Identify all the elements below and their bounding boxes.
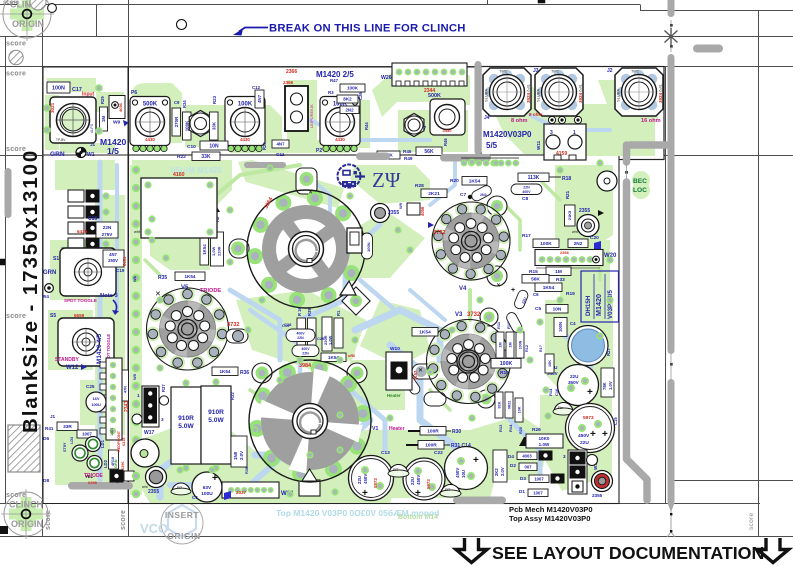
svg-text:1M: 1M (555, 269, 562, 275)
svg-text:100K: 100K (347, 86, 359, 91)
svg-text:C9: C9 (174, 100, 180, 105)
svg-text:C16: C16 (554, 388, 559, 396)
svg-text:D8: D8 (43, 478, 49, 484)
svg-text:+: + (590, 429, 596, 440)
svg-text:113K: 113K (528, 175, 540, 181)
svg-text:4430: 4430 (240, 137, 250, 142)
svg-text:REDFRONT: REDFRONT (117, 430, 121, 452)
svg-text:R 16: R 16 (297, 306, 302, 316)
svg-text:1.0V: 1.0V (608, 381, 613, 390)
svg-text:2355: 2355 (388, 210, 399, 216)
svg-text:R38: R38 (245, 467, 249, 474)
svg-text:W1: W1 (87, 152, 95, 158)
svg-text:10N: 10N (209, 143, 219, 149)
svg-text:J2: J2 (607, 68, 613, 74)
svg-text:wht: wht (134, 230, 141, 234)
svg-text:Pcb Mech M1420V03P0: Pcb Mech M1420V03P0 (509, 505, 593, 514)
svg-text:1K54: 1K54 (185, 274, 196, 279)
svg-text:W9: W9 (398, 202, 403, 209)
svg-text:2N2: 2N2 (574, 241, 583, 247)
svg-text:R17: R17 (522, 233, 531, 239)
svg-text:4N7: 4N7 (257, 94, 262, 103)
svg-text:1: 1 (137, 393, 140, 398)
svg-text:1,0W: 1,0W (328, 335, 333, 345)
svg-text:score: score (6, 71, 26, 78)
svg-text:100K: 100K (500, 361, 513, 367)
svg-text:R25: R25 (519, 427, 523, 434)
svg-text:Rv: Rv (558, 405, 563, 410)
svg-text:10K0: 10K0 (539, 436, 550, 441)
svg-text:+: + (511, 287, 515, 294)
svg-text:BREAK ON THIS LINE FOR CLINCH: BREAK ON THIS LINE FOR CLINCH (269, 23, 466, 35)
svg-text:22N: 22N (302, 351, 309, 355)
svg-text:2.0V: 2.0V (239, 451, 244, 460)
svg-text:400V: 400V (522, 190, 531, 194)
svg-text:100K: 100K (540, 241, 552, 247)
svg-text:220R: 220R (217, 246, 222, 256)
svg-text:VCO: VCO (140, 521, 168, 536)
svg-text:ORIGIN: ORIGIN (12, 19, 44, 29)
svg-text:RT: RT (445, 487, 451, 492)
svg-text:3: 3 (161, 417, 164, 422)
svg-text:TRIODE: TRIODE (200, 288, 221, 294)
svg-text:21K5: 21K5 (567, 210, 572, 220)
svg-text:500K: 500K (143, 102, 158, 108)
svg-text:Bottom M14: Bottom M14 (398, 514, 438, 521)
svg-text:V5: V5 (181, 285, 189, 291)
svg-text:D4: D4 (508, 454, 514, 459)
svg-text:P2: P2 (316, 148, 322, 154)
svg-text:C11: C11 (276, 152, 285, 158)
svg-text:R32: R32 (230, 392, 235, 400)
svg-text:1N8: 1N8 (233, 451, 238, 460)
svg-text:R41: R41 (45, 426, 54, 431)
svg-text:LD1: LD1 (100, 439, 105, 448)
svg-text:W11: W11 (536, 140, 541, 150)
svg-text:R49: R49 (404, 156, 413, 161)
svg-text:R22: R22 (177, 154, 186, 160)
svg-text:D3: D3 (520, 476, 526, 481)
svg-text:100K: 100K (238, 102, 253, 108)
svg-text:4430: 4430 (145, 137, 155, 142)
svg-text:score: score (6, 41, 26, 48)
svg-text:C26: C26 (358, 92, 363, 100)
svg-text:6559: 6559 (74, 313, 85, 318)
svg-text:3732: 3732 (227, 322, 239, 328)
svg-text:J1: J1 (90, 142, 96, 147)
svg-text:+: + (362, 488, 368, 499)
svg-text:4160: 4160 (173, 172, 185, 178)
svg-text:V3: V3 (455, 312, 463, 318)
svg-text:2366: 2366 (286, 69, 297, 75)
svg-text:C19: C19 (116, 268, 125, 273)
svg-text:1: 1 (573, 130, 576, 136)
svg-text:TIP2: TIP2 (658, 84, 662, 92)
svg-text:R36: R36 (240, 370, 249, 376)
svg-text:1.0W: 1.0W (539, 442, 550, 447)
svg-text:3924: 3924 (526, 92, 531, 103)
svg-text:+: + (473, 455, 479, 466)
svg-text:100R: 100R (425, 442, 437, 448)
svg-text:275V: 275V (102, 232, 114, 237)
svg-text:score: score (120, 510, 127, 530)
svg-text:R19: R19 (566, 291, 575, 297)
svg-text:1K54: 1K54 (419, 329, 431, 335)
svg-text:C19: C19 (282, 323, 290, 328)
svg-text:LE/PURE/UK: LE/PURE/UK (309, 104, 314, 128)
svg-text:R18: R18 (562, 176, 571, 182)
svg-text:uR6: uR6 (348, 354, 355, 358)
svg-text:450V: 450V (416, 475, 421, 485)
svg-text:47R: 47R (124, 386, 128, 393)
svg-text:R1?: R1? (539, 345, 543, 352)
svg-text:Heater: Heater (389, 426, 405, 432)
svg-text:M1420V03P0: M1420V03P0 (483, 130, 532, 139)
svg-text:ZΨ: ZΨ (372, 168, 401, 192)
svg-text:6318: 6318 (122, 438, 126, 446)
svg-text:82K: 82K (497, 401, 501, 408)
svg-text:1K54: 1K54 (469, 178, 481, 184)
svg-text:R27: R27 (606, 347, 611, 356)
svg-text:score: score (748, 513, 755, 530)
svg-text:S1: S1 (53, 256, 59, 262)
svg-text:✕: ✕ (418, 368, 423, 374)
svg-text:BlankSize - 17350x13100: BlankSize - 17350x13100 (19, 149, 42, 433)
svg-text:ALPS: ALPS (90, 123, 94, 133)
svg-text:2K2: 2K2 (494, 468, 499, 476)
svg-text:4056: 4056 (118, 102, 123, 112)
svg-text:SLUBA: SLUBA (616, 89, 621, 102)
svg-text:3732: 3732 (467, 312, 481, 318)
svg-text:5.0W: 5.0W (208, 417, 224, 424)
svg-text:+: + (602, 429, 608, 440)
svg-text:2355: 2355 (592, 493, 603, 498)
svg-text:1007: 1007 (533, 490, 543, 495)
svg-text:450V: 450V (363, 474, 368, 484)
svg-text:score: score (45, 510, 52, 530)
svg-text:100N: 100N (366, 242, 371, 252)
svg-text:INSERT: INSERT (165, 510, 199, 520)
svg-text:100K: 100K (184, 120, 189, 131)
svg-text:R13: R13 (498, 424, 503, 432)
svg-text:W6: W6 (132, 275, 137, 282)
svg-text:1K54: 1K54 (202, 244, 207, 255)
svg-text:5.0W: 5.0W (178, 423, 194, 430)
svg-text:22U: 22U (410, 477, 415, 485)
svg-text:33K: 33K (201, 154, 211, 160)
svg-text:ORIGIN: ORIGIN (167, 531, 200, 541)
svg-text:C29: C29 (317, 336, 325, 341)
svg-text:3984: 3984 (299, 363, 311, 369)
svg-text:1K54: 1K54 (543, 285, 555, 291)
svg-text:S5: S5 (50, 313, 56, 319)
svg-text:TIP2: TIP2 (526, 84, 530, 92)
svg-text:C10: C10 (187, 144, 196, 150)
svg-text:22U: 22U (357, 476, 362, 484)
svg-text:GRN: GRN (50, 151, 65, 158)
svg-text:450V: 450V (578, 433, 590, 439)
svg-text:8K2: 8K2 (343, 97, 352, 102)
svg-text:C4: C4 (570, 321, 576, 326)
svg-text:1M: 1M (508, 342, 512, 347)
svg-text:C6: C6 (533, 292, 539, 297)
svg-text:100N: 100N (52, 85, 65, 91)
svg-text:D1: D1 (519, 489, 525, 494)
svg-text:350V: 350V (568, 380, 580, 385)
svg-text:TIP1: TIP1 (499, 70, 507, 74)
svg-text:2N2: 2N2 (345, 107, 354, 112)
svg-text:C8: C8 (522, 196, 528, 202)
svg-text:5973: 5973 (373, 478, 378, 488)
svg-text:J3: J3 (533, 68, 539, 74)
svg-text:BEC: BEC (633, 178, 647, 185)
svg-text:R14: R14 (508, 424, 513, 432)
svg-text:2N2: 2N2 (480, 193, 487, 197)
svg-text:4430: 4430 (443, 128, 453, 133)
svg-text:Top Assy M1420V03P0: Top Assy M1420V03P0 (509, 514, 590, 523)
svg-text:C20: C20 (590, 235, 599, 241)
svg-text:GRN: GRN (114, 459, 118, 468)
svg-text:R23: R23 (212, 95, 217, 104)
svg-text:4N7: 4N7 (109, 252, 117, 257)
svg-text:R20: R20 (450, 178, 459, 184)
svg-text:+: + (587, 387, 593, 398)
svg-text:100U: 100U (201, 491, 213, 497)
svg-text:ORIGIN: ORIGIN (11, 519, 43, 529)
svg-text:3: 3 (563, 454, 566, 459)
svg-text:3924: 3924 (658, 92, 663, 103)
svg-text:270R: 270R (174, 116, 179, 127)
svg-text:R44: R44 (364, 122, 369, 130)
svg-text:✕: ✕ (496, 283, 501, 289)
svg-text:2K21: 2K21 (428, 191, 440, 197)
svg-text:M1420 4/5: M1420 4/5 (96, 333, 103, 364)
svg-text:STANDBY: STANDBY (55, 357, 79, 363)
svg-text:wht: wht (142, 485, 148, 489)
svg-text:+: + (212, 473, 218, 484)
svg-text:W10: W10 (390, 346, 400, 352)
svg-text:450V: 450V (455, 468, 460, 478)
svg-text:W12: W12 (66, 365, 79, 371)
svg-text:CLINCH: CLINCH (9, 500, 43, 510)
svg-text:4056: 4056 (420, 206, 425, 216)
svg-text:J1: J1 (50, 414, 56, 419)
svg-text:4157: 4157 (413, 370, 418, 380)
svg-text:R3: R3 (328, 90, 334, 95)
svg-text:6399: 6399 (88, 480, 98, 485)
svg-text:2355: 2355 (148, 489, 159, 495)
svg-text:D2: D2 (510, 463, 516, 468)
svg-text:22U: 22U (580, 440, 589, 446)
svg-text:V4: V4 (459, 286, 467, 292)
svg-text:5973: 5973 (426, 479, 431, 489)
svg-text:TP-BV: TP-BV (56, 138, 66, 142)
svg-text:D6: D6 (43, 436, 49, 442)
svg-text:910R: 910R (178, 415, 194, 422)
svg-text:TIP1: TIP1 (551, 70, 559, 74)
svg-text:4430: 4430 (335, 137, 345, 142)
svg-text:4003: 4003 (522, 453, 532, 458)
svg-text:16 ohm: 16 ohm (641, 118, 661, 124)
svg-text:RT: RT (393, 467, 399, 472)
svg-text:3732: 3732 (433, 230, 445, 236)
svg-text:GRN: GRN (43, 270, 56, 276)
svg-text:wht: wht (572, 230, 578, 234)
svg-text:+: + (415, 488, 421, 499)
svg-text:M1420: M1420 (594, 294, 603, 316)
svg-text:1007: 1007 (110, 428, 114, 436)
svg-text:R34: R34 (182, 100, 187, 108)
svg-text:250V: 250V (108, 258, 118, 263)
svg-text:R46: R46 (443, 138, 448, 146)
svg-text:W5: W5 (132, 373, 137, 380)
svg-text:Heater: Heater (387, 393, 401, 398)
svg-text:TRIODE: TRIODE (84, 473, 104, 479)
svg-text:100U: 100U (91, 402, 101, 407)
svg-text:56K: 56K (531, 276, 540, 282)
svg-text:TIP1: TIP1 (631, 70, 639, 74)
svg-text:V03P0 3/5: V03P0 3/5 (607, 290, 614, 319)
svg-text:2366: 2366 (283, 80, 294, 85)
svg-text:5973: 5973 (583, 415, 594, 421)
svg-text:10N: 10N (553, 306, 562, 312)
svg-text:R45: R45 (403, 149, 412, 154)
svg-text:LD2: LD2 (103, 459, 108, 468)
svg-text:007: 007 (525, 464, 533, 469)
svg-text:10K: 10K (517, 406, 521, 413)
svg-text:W9: W9 (113, 120, 121, 126)
svg-text:1007: 1007 (534, 476, 544, 481)
svg-text:ST8Y: ST8Y (63, 442, 67, 452)
svg-text:8 ohm: 8 ohm (529, 112, 543, 117)
svg-text:R7: R7 (177, 485, 183, 490)
svg-text:22N: 22N (103, 225, 112, 230)
svg-text:C13: C13 (381, 450, 390, 456)
svg-text:R24: R24 (262, 142, 267, 150)
svg-text:33R: 33R (63, 424, 72, 430)
svg-text:R30: R30 (452, 429, 461, 435)
svg-text:1,0W: 1,0W (211, 246, 216, 256)
svg-text:500K: 500K (428, 93, 441, 99)
svg-text:R29: R29 (100, 96, 105, 104)
svg-text:56K: 56K (424, 149, 434, 155)
svg-text:78K: 78K (602, 382, 607, 390)
svg-text:DH15H: DH15H (585, 295, 592, 316)
svg-text:1007: 1007 (82, 432, 92, 437)
svg-text:LOC: LOC (633, 187, 647, 194)
svg-text:TIP2: TIP2 (578, 84, 582, 92)
svg-text:V1: V1 (372, 426, 378, 432)
svg-text:2327: 2327 (236, 490, 247, 495)
svg-text:R47: R47 (330, 78, 339, 83)
svg-text:10K: 10K (548, 360, 552, 367)
svg-text:R28: R28 (415, 183, 424, 189)
svg-text:W17: W17 (144, 430, 155, 436)
svg-text:2355: 2355 (579, 208, 590, 214)
svg-text:22U: 22U (570, 374, 579, 379)
svg-text:3: 3 (550, 130, 553, 136)
svg-text:C25: C25 (86, 384, 95, 389)
svg-text:1M: 1M (498, 342, 502, 347)
svg-text:SLUBA: SLUBA (484, 89, 489, 102)
svg-text:100R: 100R (427, 428, 439, 434)
svg-text:R35: R35 (158, 275, 167, 281)
svg-text:R10: R10 (500, 370, 509, 376)
svg-text:910R: 910R (208, 409, 224, 416)
svg-text:C5: C5 (535, 306, 541, 312)
svg-text:33K: 33K (211, 121, 216, 130)
svg-text:P6: P6 (131, 90, 137, 96)
svg-text:J4: J4 (484, 115, 490, 121)
svg-text:SEE LAYOUT DOCUMENTATION: SEE LAYOUT DOCUMENTATION (492, 543, 764, 563)
svg-text:W26: W26 (381, 75, 392, 81)
svg-text:6435: 6435 (77, 229, 88, 234)
svg-text:0R22: 0R22 (507, 401, 511, 410)
svg-text:6396: 6396 (121, 462, 125, 470)
svg-text:1K54: 1K54 (220, 369, 231, 374)
svg-text:63V: 63V (203, 485, 212, 491)
svg-text:C17: C17 (72, 87, 82, 93)
svg-text:R33: R33 (556, 277, 565, 283)
svg-text:100N: 100N (558, 322, 563, 332)
svg-text:6451: 6451 (122, 256, 127, 266)
svg-text:1/5: 1/5 (107, 146, 119, 156)
svg-text:4N7: 4N7 (276, 142, 285, 147)
svg-text:✕: ✕ (308, 190, 313, 196)
svg-text:C15: C15 (613, 417, 618, 425)
svg-text:LD3: LD3 (70, 437, 74, 444)
svg-text:C18: C18 (88, 216, 97, 222)
svg-text:5/5: 5/5 (486, 141, 498, 150)
svg-text:22N: 22N (297, 336, 304, 340)
svg-text:SPDT TOGGLE: SPDT TOGGLE (64, 298, 97, 303)
svg-text:2343: 2343 (124, 401, 130, 412)
svg-text:2.0V: 2.0V (500, 467, 505, 476)
svg-text:C7: C7 (460, 192, 466, 198)
svg-text:10U: 10U (461, 470, 466, 478)
svg-text:C12: C12 (252, 85, 261, 90)
svg-text:R12: R12 (525, 345, 529, 352)
svg-text:C1: C1 (192, 495, 198, 501)
svg-text:R39: R39 (307, 308, 312, 316)
svg-text:W4: W4 (42, 294, 49, 299)
svg-text:R1: R1 (336, 310, 341, 316)
svg-text:2366: 2366 (560, 250, 570, 255)
svg-text:R26: R26 (532, 427, 541, 433)
svg-text:R21: R21 (565, 190, 570, 199)
svg-text:1M: 1M (101, 116, 106, 122)
svg-text:Note 3: Note 3 (100, 293, 118, 299)
svg-text:R11: R11 (496, 321, 501, 329)
svg-text:R37: R37 (161, 384, 166, 392)
svg-text:3924: 3924 (578, 92, 583, 103)
svg-text:8 ohm: 8 ohm (511, 118, 527, 124)
svg-text:SLUBA: SLUBA (536, 89, 541, 102)
svg-text:16V: 16V (92, 396, 99, 401)
svg-text:C22: C22 (434, 450, 443, 456)
svg-text:100N: 100N (518, 340, 522, 349)
